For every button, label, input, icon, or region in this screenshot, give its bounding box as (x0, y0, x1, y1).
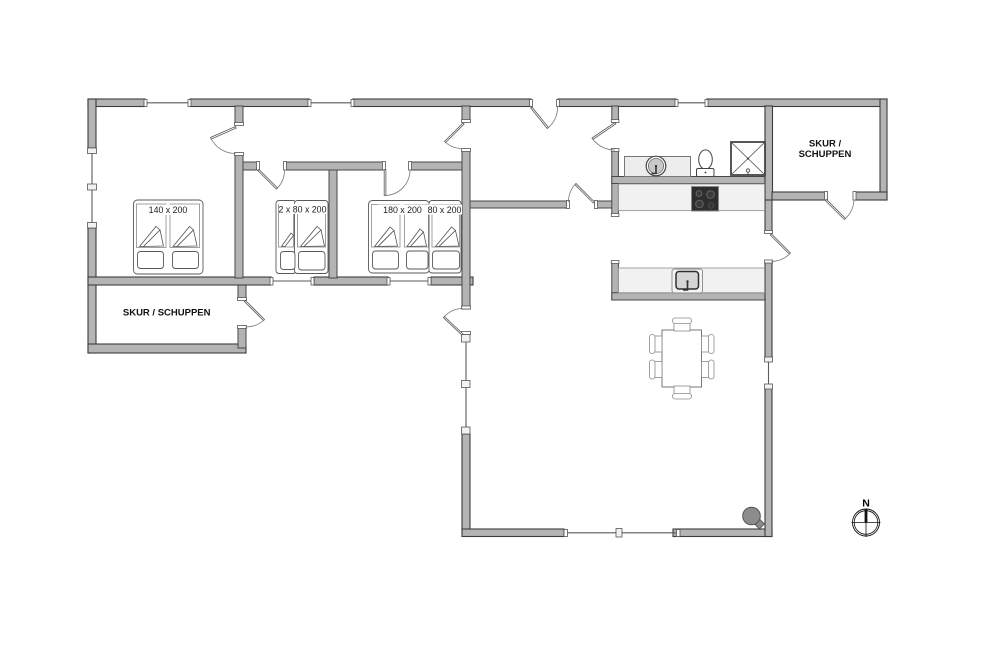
svg-text:80 x 200: 80 x 200 (428, 205, 462, 215)
svg-text:SCHUPPEN: SCHUPPEN (799, 149, 852, 160)
svg-text:2 x 80 x 200: 2 x 80 x 200 (279, 205, 327, 215)
svg-text:180 x 200: 180 x 200 (383, 205, 422, 215)
svg-text:140 x 200: 140 x 200 (149, 205, 188, 215)
svg-text:SKUR / SCHUPPEN: SKUR / SCHUPPEN (123, 307, 211, 318)
svg-text:N: N (862, 498, 870, 510)
